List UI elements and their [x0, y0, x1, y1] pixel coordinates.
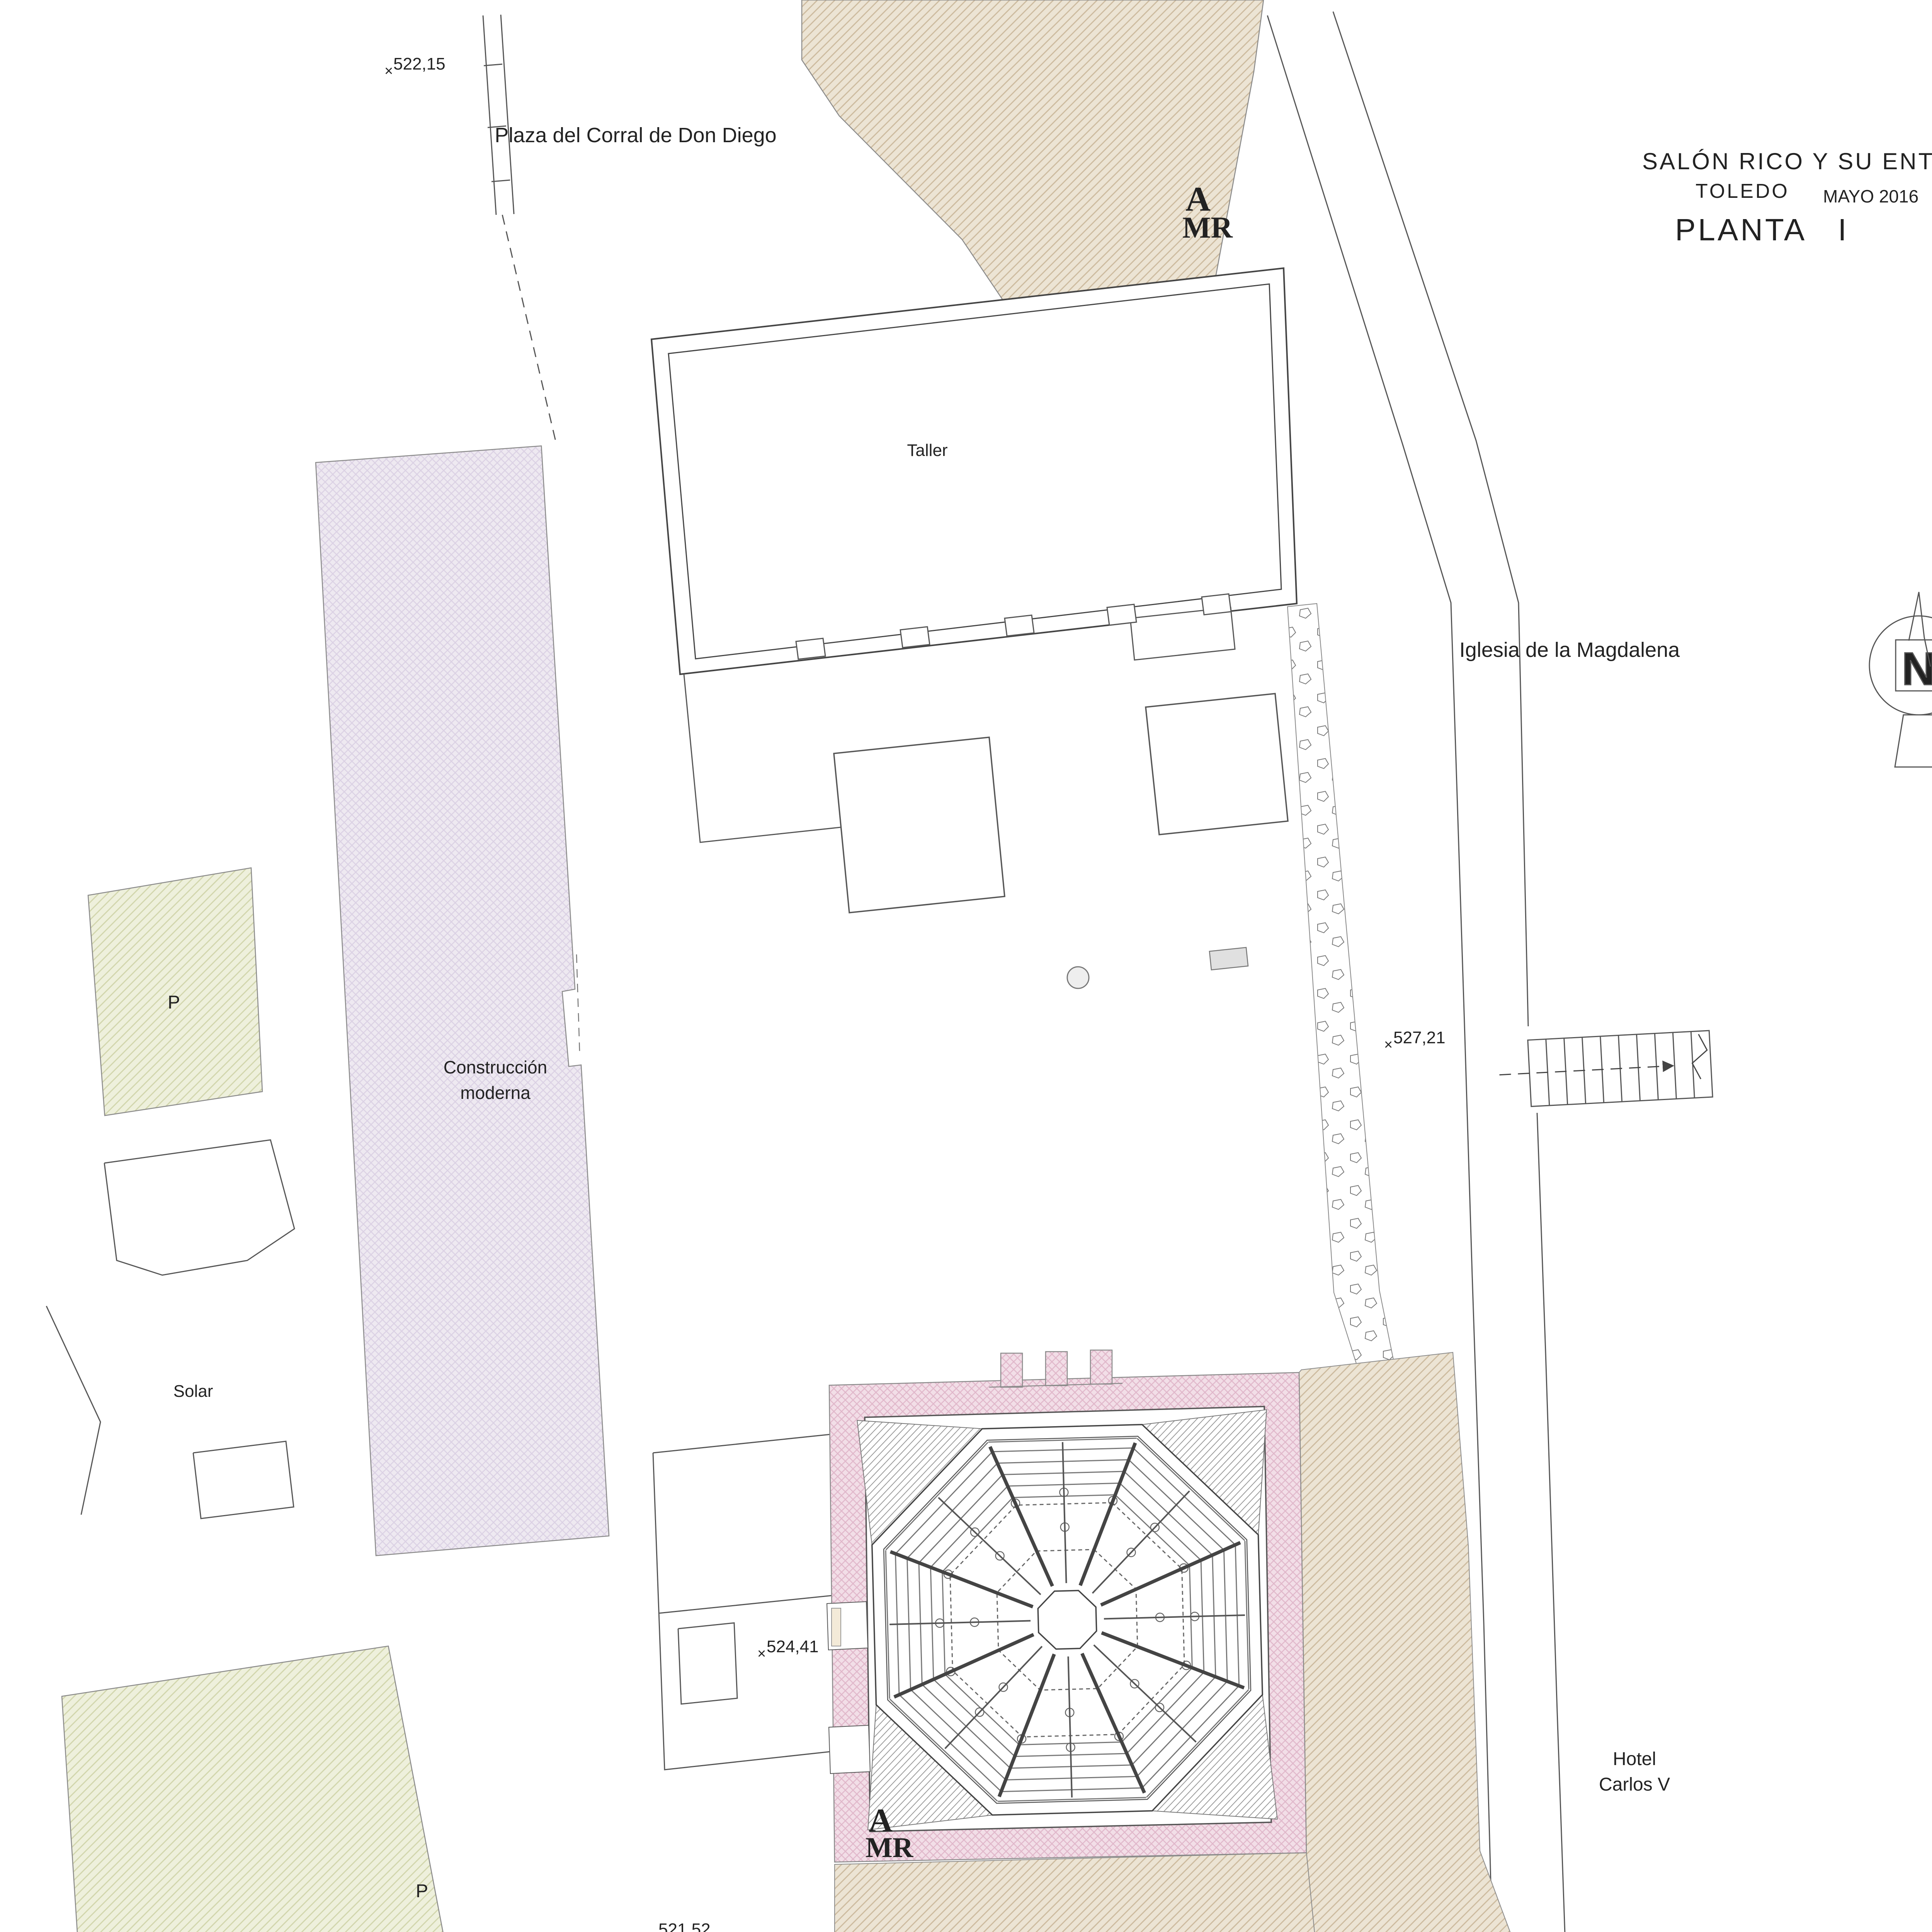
project-title: SALÓN RICO Y SU ENTORNO	[1642, 148, 1932, 174]
parking-label-2: P	[416, 1881, 428, 1901]
artesonado-ceiling	[857, 1410, 1277, 1830]
spot-marker-1: ×	[384, 63, 393, 79]
plan-sheet: Taller A MR Construcción moderna P Solar	[0, 0, 1932, 1932]
construccion-label-2: moderna	[460, 1083, 531, 1103]
salon-portico	[1001, 1350, 1112, 1387]
solar-label: Solar	[173, 1382, 213, 1401]
spot-marker-3: ×	[757, 1646, 766, 1662]
spot-height-4: 521,52	[658, 1920, 711, 1932]
svg-text:MR: MR	[1182, 211, 1233, 244]
svg-text:MR: MR	[866, 1832, 914, 1864]
parking-building-2: P	[62, 1646, 454, 1932]
spot-height-3: 524,41	[767, 1637, 819, 1656]
iglesia-label: Iglesia de la Magdalena	[1459, 638, 1680, 662]
plaza-label: Plaza del Corral de Don Diego	[495, 124, 776, 147]
taller-label: Taller	[907, 441, 947, 460]
project-city: TOLEDO	[1696, 180, 1789, 202]
parking-label-1: P	[168, 992, 180, 1013]
spot-height-2: 527,21	[1393, 1028, 1446, 1047]
hotel-label-2: Carlos V	[1599, 1774, 1670, 1795]
spot-marker-4: ×	[649, 1929, 658, 1932]
spot-marker-2: ×	[1384, 1037, 1393, 1053]
construccion-label-1: Construcción	[444, 1057, 547, 1077]
project-date: MAYO 2016	[1823, 186, 1918, 206]
parking-building-1: P	[88, 868, 262, 1116]
salon-rico: A MR	[827, 1350, 1306, 1864]
sheet-title: PLANTA I	[1675, 213, 1849, 247]
hotel-label-1: Hotel	[1613, 1749, 1656, 1769]
spot-height-1: 522,15	[393, 54, 446, 73]
